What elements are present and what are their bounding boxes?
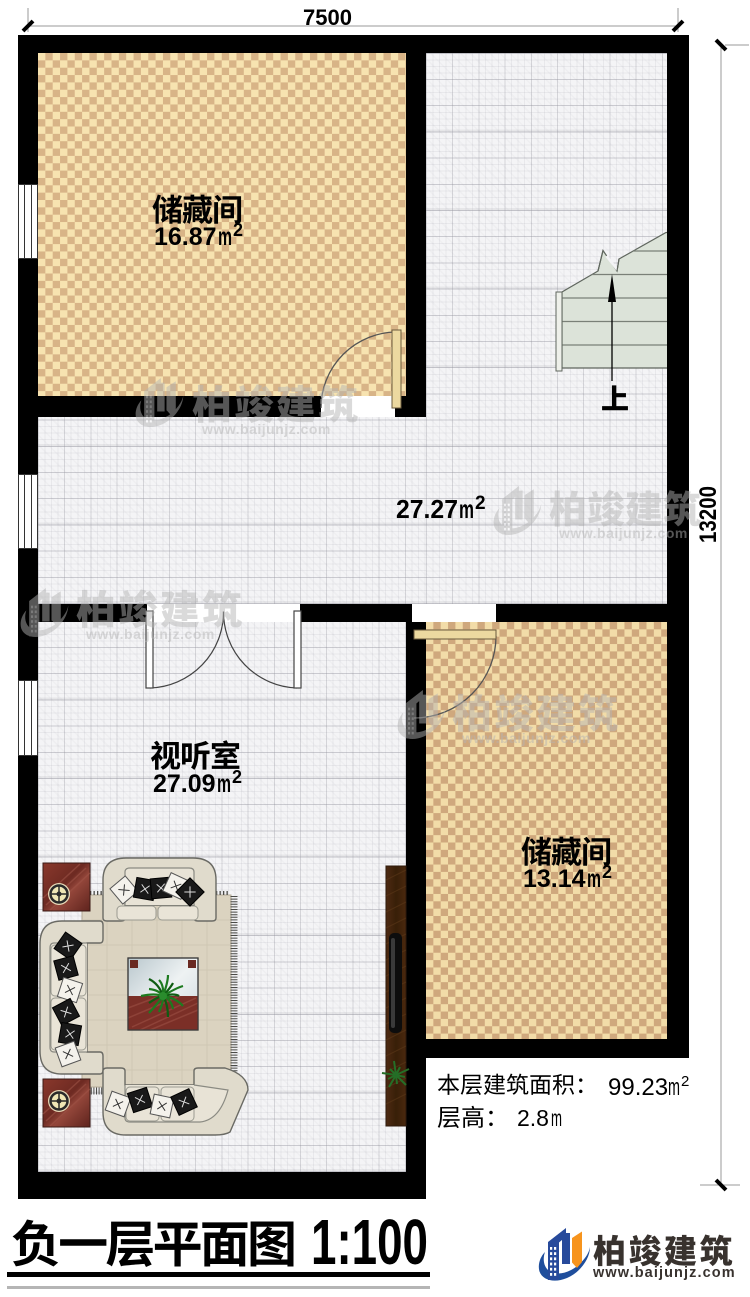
- svg-text:13200: 13200: [695, 486, 722, 543]
- svg-text:m: m: [668, 1074, 680, 1101]
- svg-text:2: 2: [233, 220, 243, 240]
- svg-text:13.14: 13.14: [523, 865, 586, 892]
- svg-text:1:100: 1:100: [311, 1206, 428, 1278]
- svg-text:16.87: 16.87: [154, 223, 217, 250]
- svg-text:2: 2: [475, 493, 486, 514]
- svg-text:m: m: [587, 865, 601, 892]
- svg-text:2: 2: [602, 862, 612, 882]
- svg-text:27.27: 27.27: [396, 494, 458, 524]
- svg-text:m: m: [459, 494, 474, 524]
- svg-text:2: 2: [681, 1073, 689, 1090]
- svg-text:www.baijunjz.com: www.baijunjz.com: [558, 525, 688, 541]
- svg-text:m: m: [218, 223, 232, 250]
- svg-text:m: m: [551, 1105, 562, 1131]
- svg-text:2: 2: [232, 767, 242, 787]
- svg-text:m: m: [217, 770, 231, 797]
- svg-text:www.baijunjz.com: www.baijunjz.com: [592, 1265, 736, 1281]
- svg-text:www.baijunjz.com: www.baijunjz.com: [461, 730, 591, 746]
- svg-text:27.09: 27.09: [153, 770, 216, 797]
- svg-text:www.baijunjz.com: www.baijunjz.com: [85, 626, 215, 642]
- svg-text:99.23: 99.23: [608, 1074, 668, 1101]
- svg-text:www.baijunjz.com: www.baijunjz.com: [201, 421, 331, 437]
- svg-text:2.8: 2.8: [517, 1105, 549, 1131]
